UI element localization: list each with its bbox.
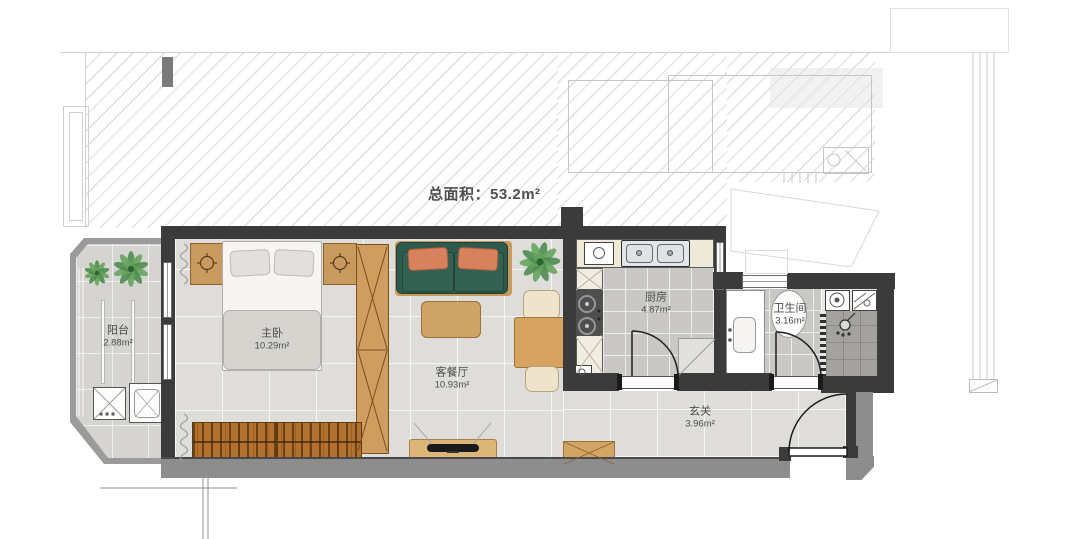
sink-basin-right [657,244,684,263]
balcony-sliding-window [163,324,172,380]
room-area: 3.16m² [774,316,807,328]
coffee-table [421,301,481,338]
kitchen-label: 厨房 4.87m² [641,291,671,318]
room-name: 卫生间 [774,302,807,316]
dining-table [514,317,567,368]
balcony-sliding-window [163,262,172,318]
wall-bottom-exterior [161,457,790,478]
room-area: 2.88m² [103,338,133,350]
bathroom-label: 卫生间 3.16m² [774,302,807,329]
laundry-sink [93,387,126,420]
bed-pillow [229,249,270,277]
entry-door-hinge-block [843,446,858,458]
sofa-pillow [407,247,448,271]
wall-top-kitchen [578,226,726,239]
wall-bath-bottom-right [821,376,878,393]
room-name: 阳台 [103,324,133,338]
vanity-basin [733,317,756,353]
wall-kitchen-bottom-right [677,373,714,391]
total-area-title: 总面积：53.2m² [428,183,541,204]
room-area: 4.87m² [641,305,671,317]
wall-column-stub [162,57,173,87]
dining-chair-bottom [525,366,559,392]
room-area: 10.29m² [255,341,290,353]
entry-label: 玄关 3.96m² [685,405,715,432]
context-pipe-lines-right [969,52,998,393]
shower-floor [826,311,877,377]
dining-chair-top [523,290,560,320]
room-name: 玄关 [685,405,715,419]
bedroom-label: 主卧 10.29m² [255,327,290,354]
balcony-floor [76,244,164,462]
context-kite-outline [731,189,879,274]
room-name: 客餐厅 [435,366,470,380]
hatch-area-above-kitchen [557,53,727,228]
living-label: 客餐厅 10.93m² [435,366,470,393]
bathroom-door-threshold [772,376,821,389]
bathroom-window [742,275,788,288]
wall-right-bathroom [877,273,894,393]
entry-door-frame-left [779,447,791,461]
wall-top-main [161,226,565,239]
water-heater [852,290,877,311]
wall-corner-bath [713,272,743,289]
bed-pillow [273,249,314,277]
wall-kitchen-bottom-left [563,373,619,391]
wall-bath-bottom-left [713,373,772,391]
gas-stove [572,289,603,336]
wall-entry-corner [846,456,874,480]
sink-basin-left [626,244,653,263]
floor-plan: 总面积：53.2m² 阳台 2.88m² 主卧 10.29m² 客餐厅 10.9… [0,0,1080,539]
room-area: 3.96m² [685,419,715,431]
kitchen-door-threshold [619,376,677,389]
tv [427,444,479,452]
hatch-area-neighbor [727,53,875,182]
wall-entry-right [856,392,873,460]
balcony-washer-drum [134,389,160,418]
sofa-pillow [457,247,498,271]
fridge [678,338,716,377]
wall-kitchen-left [563,239,576,387]
nightstand-right [323,243,357,285]
room-name: 主卧 [255,327,290,341]
nightstand-left [190,243,224,285]
bookshelf-divider [276,423,278,461]
shower-glass-partition [820,311,826,377]
kitchen-appliance-box [584,242,614,265]
room-area: 10.93m² [435,380,470,392]
bath-washing-machine [825,290,850,311]
room-name: 厨房 [641,291,671,305]
balcony-label: 阳台 2.88m² [103,324,133,351]
